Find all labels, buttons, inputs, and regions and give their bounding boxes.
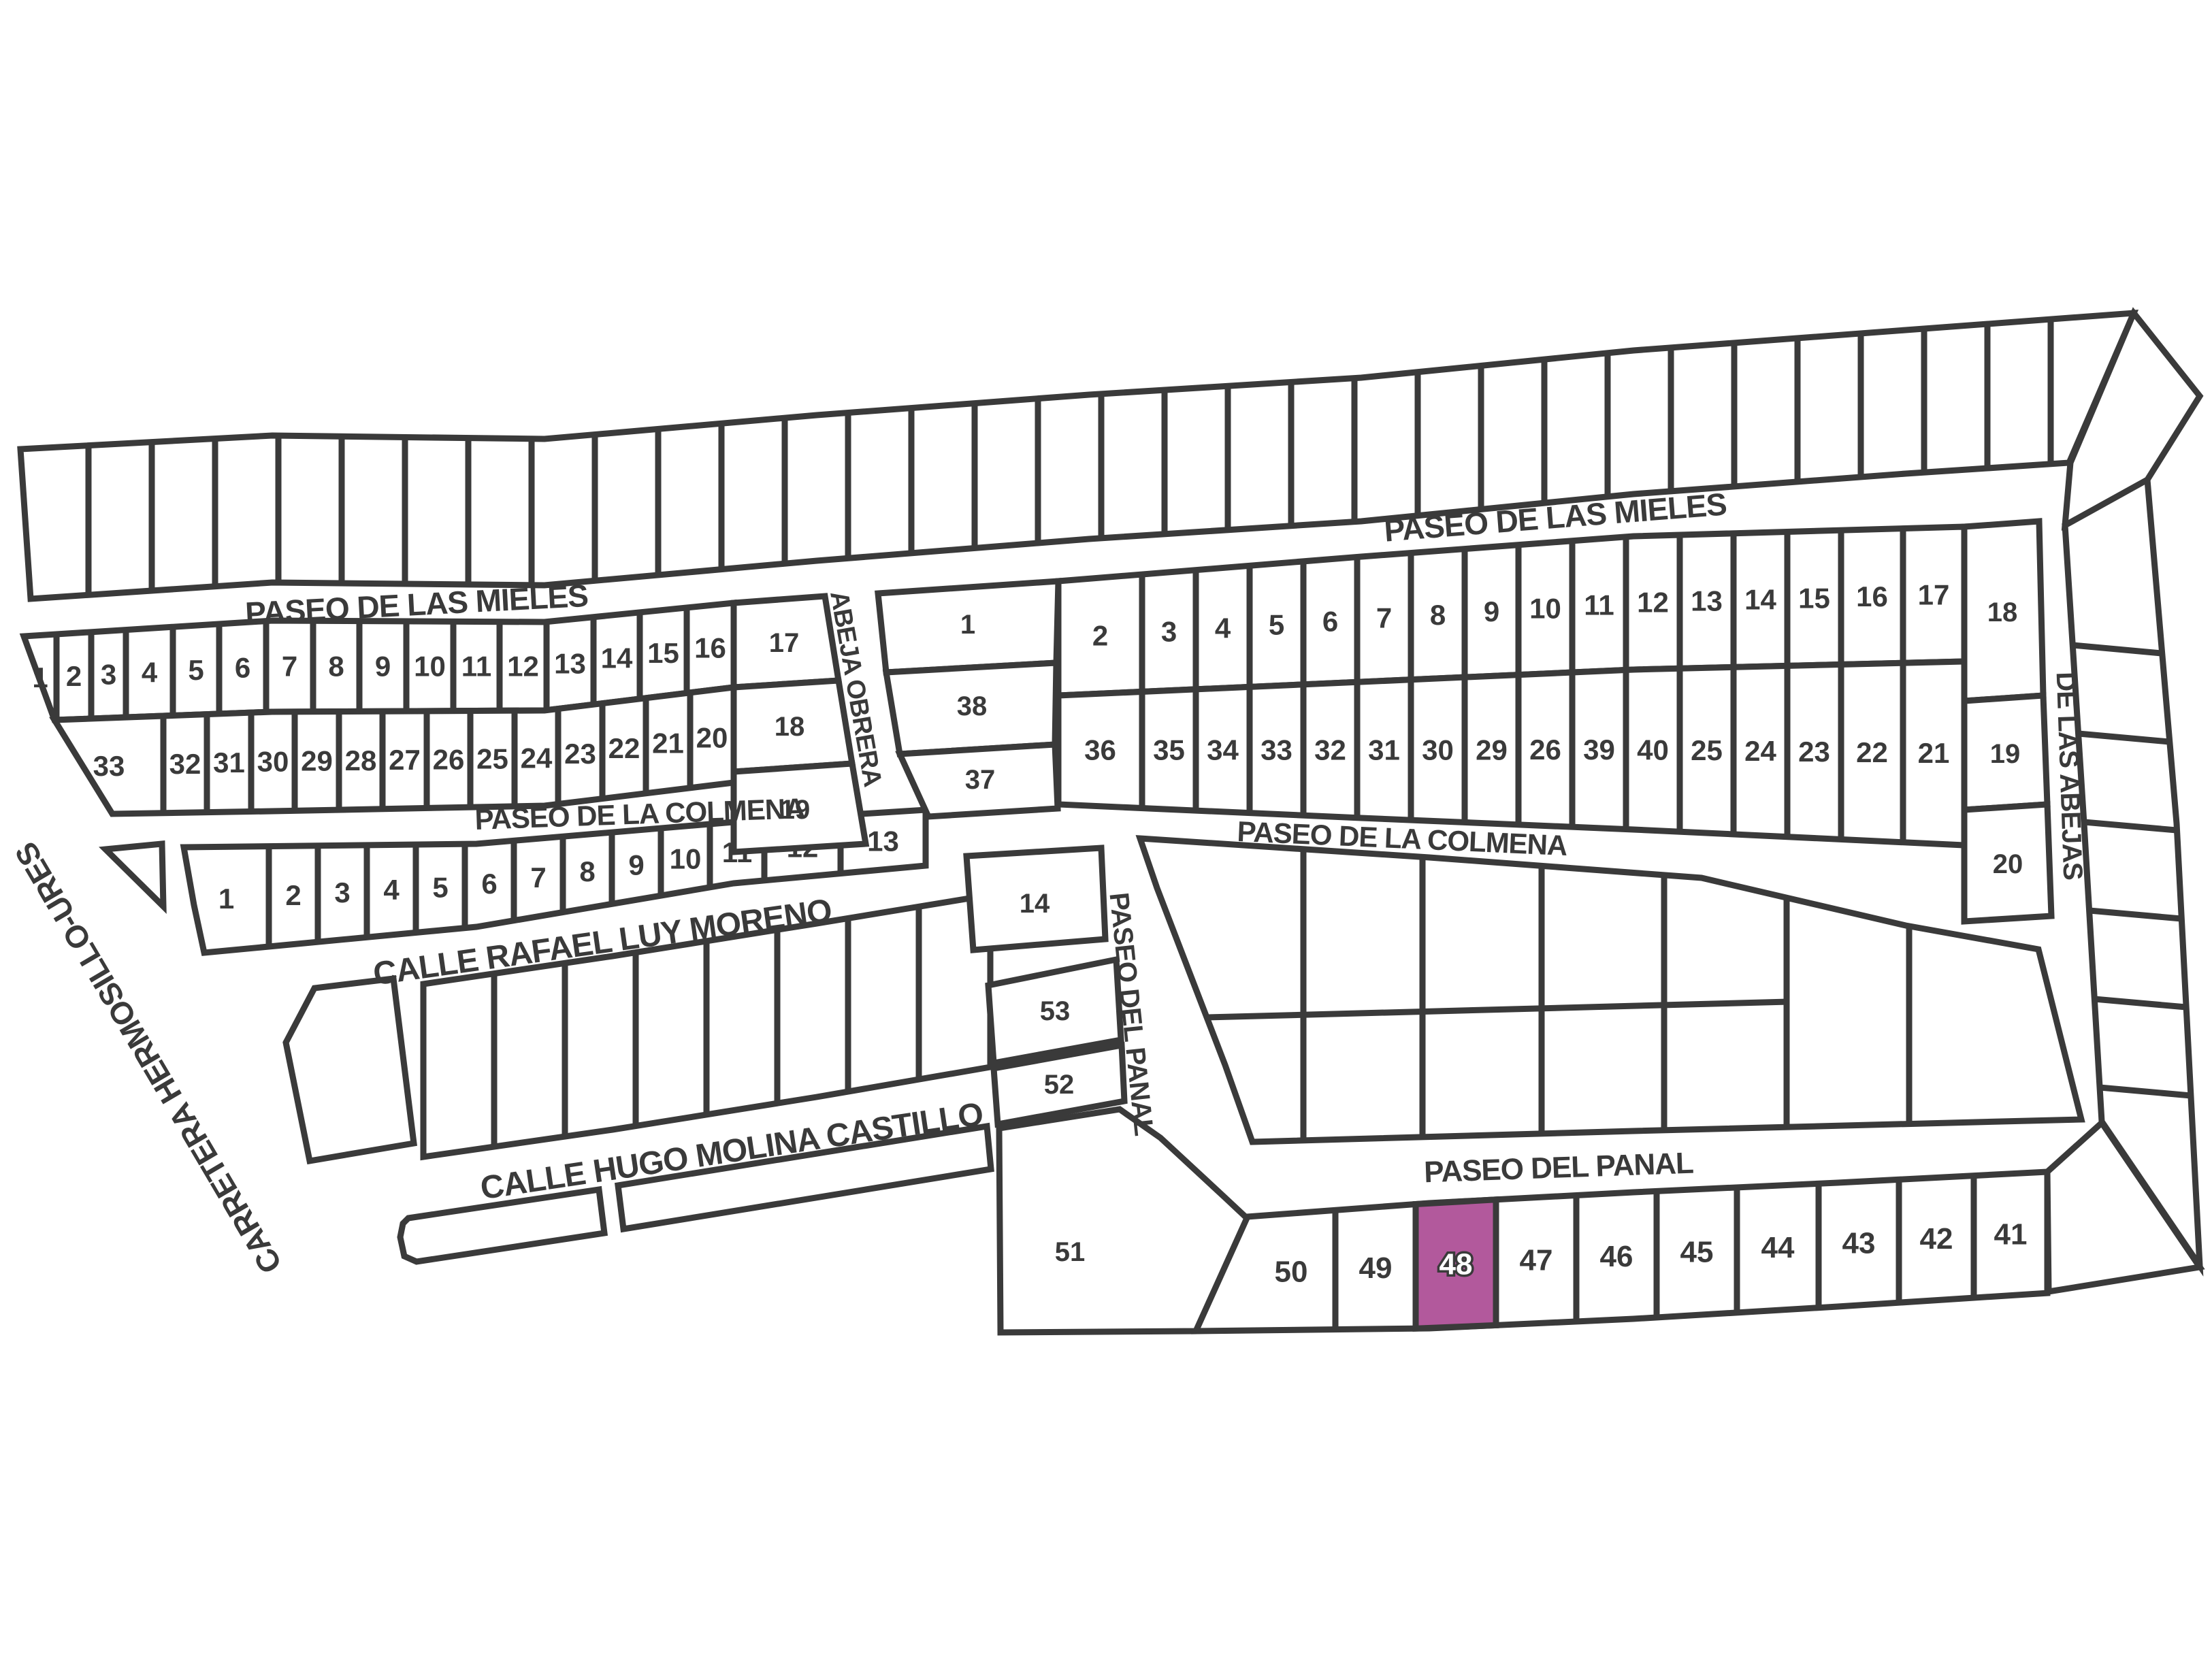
lot-panal-row-42[interactable]: 42 xyxy=(1920,1222,1953,1256)
block-lot-14: 14 xyxy=(966,848,1105,950)
lot-lot-14-14[interactable]: 14 xyxy=(1020,889,1050,919)
block-pentagon-lot xyxy=(286,979,414,1161)
block-panal-row: 50494847464544434241 xyxy=(1196,1172,2047,1331)
lot-colmena-south-8[interactable]: 8 xyxy=(579,855,595,887)
plat-map: 1234567891011121314151633323130292827262… xyxy=(0,0,2212,1655)
lot-right-row-a-11[interactable]: 11 xyxy=(1584,589,1614,621)
lot-panal-row-47[interactable]: 47 xyxy=(1520,1244,1553,1277)
lot-right-col-18-20-18[interactable]: 18 xyxy=(1987,597,2018,627)
lot-left-row-a-10[interactable]: 10 xyxy=(414,651,446,683)
lot-left-row-a-13[interactable]: 13 xyxy=(554,647,586,679)
lot-right-row-a-10[interactable]: 10 xyxy=(1529,592,1561,624)
lot-right-row-a-2[interactable]: 2 xyxy=(1092,620,1108,652)
lot-left-row-a-1[interactable]: 1 xyxy=(32,661,48,693)
lot-right-row-b-22[interactable]: 22 xyxy=(1856,736,1888,768)
lot-left-row-b-29[interactable]: 29 xyxy=(301,745,333,777)
lot-left-row-a-3[interactable]: 3 xyxy=(101,659,116,691)
lot-left-row-b-20[interactable]: 20 xyxy=(696,721,728,753)
lot-right-row-b-21[interactable]: 21 xyxy=(1918,737,1950,769)
lot-right-row-a-9[interactable]: 9 xyxy=(1484,595,1499,627)
lot-panal-row-48[interactable]: 48 xyxy=(1440,1248,1473,1281)
lot-colmena-south-3[interactable]: 3 xyxy=(334,876,350,908)
lot-left-row-a-12[interactable]: 12 xyxy=(507,651,539,683)
street-label-de-las-abejas: DE LAS ABEJAS xyxy=(2051,672,2088,881)
lot-panal-row-50[interactable]: 50 xyxy=(1275,1255,1308,1288)
lot-panal-row-44[interactable]: 44 xyxy=(1761,1231,1795,1264)
lot-right-row-b-31[interactable]: 31 xyxy=(1368,734,1400,766)
lot-right-row-b-34[interactable]: 34 xyxy=(1207,734,1239,766)
lot-left-row-b-31[interactable]: 31 xyxy=(213,747,245,779)
lot-right-row-a-14[interactable]: 14 xyxy=(1744,584,1776,616)
lot-colmena-south-5[interactable]: 5 xyxy=(432,871,448,903)
lot-left-row-b-25[interactable]: 25 xyxy=(476,742,508,774)
lot-right-row-b-29[interactable]: 29 xyxy=(1476,734,1508,766)
lot-right-row-a-12[interactable]: 12 xyxy=(1637,587,1669,619)
lot-left-row-a-5[interactable]: 5 xyxy=(188,654,204,686)
lot-right-row-a-5[interactable]: 5 xyxy=(1269,608,1284,640)
lot-left-row-a-8[interactable]: 8 xyxy=(328,651,344,683)
lot-left-row-a-16[interactable]: 16 xyxy=(694,632,726,663)
lot-panal-row-41[interactable]: 41 xyxy=(1994,1218,2028,1251)
lot-right-row-a-6[interactable]: 6 xyxy=(1322,605,1338,637)
lot-left-row-a-9[interactable]: 9 xyxy=(375,651,391,683)
lot-left-row-a-4[interactable]: 4 xyxy=(142,657,158,689)
block-right-row-b: 36353433323130292639402524232221 xyxy=(1058,661,1964,845)
lot-abeja-col-38[interactable]: 38 xyxy=(957,691,988,721)
lot-left-row-b-28[interactable]: 28 xyxy=(345,744,377,776)
interior-block-outline xyxy=(1140,838,2081,1142)
triangle-lot-outline xyxy=(105,844,163,906)
block-interior-block xyxy=(1140,838,2081,1142)
lot-left-row-b-27[interactable]: 27 xyxy=(389,744,421,776)
lot-left-row-b-33[interactable]: 33 xyxy=(93,750,125,782)
lot-right-row-a-16[interactable]: 16 xyxy=(1856,580,1888,612)
lot-left-row-b-22[interactable]: 22 xyxy=(608,732,640,764)
lot-lots-53-52-53[interactable]: 53 xyxy=(1040,996,1071,1026)
lot-right-row-b-33[interactable]: 33 xyxy=(1260,734,1292,766)
plat-map-svg: 1234567891011121314151633323130292827262… xyxy=(0,0,2212,1655)
lot-right-row-b-35[interactable]: 35 xyxy=(1153,734,1185,766)
lot-colmena-south-9[interactable]: 9 xyxy=(628,849,644,881)
lot-left-row-a-15[interactable]: 15 xyxy=(647,637,679,669)
lot-abeja-col-1[interactable]: 1 xyxy=(960,610,975,640)
lot-left-row-a-11[interactable]: 11 xyxy=(461,651,491,683)
lot-panal-row-45[interactable]: 45 xyxy=(1680,1236,1714,1269)
lot-colmena-south-4[interactable]: 4 xyxy=(383,874,400,906)
lot-left-row-b-21[interactable]: 21 xyxy=(652,727,684,759)
lot-right-row-b-23[interactable]: 23 xyxy=(1798,736,1830,768)
street-label-panal-horizontal: PASEO DEL PANAL xyxy=(1423,1147,1693,1190)
lot-colmena-south-1[interactable]: 1 xyxy=(218,883,234,915)
block-lots-53-52: 5352 xyxy=(988,960,1124,1124)
block-abeja-col: 13837 xyxy=(878,581,1058,817)
lot-right-row-b-40[interactable]: 40 xyxy=(1637,734,1669,766)
lot-panal-row-46[interactable]: 46 xyxy=(1600,1240,1633,1273)
lot-right-row-a-8[interactable]: 8 xyxy=(1430,599,1446,631)
lot-panal-row-43[interactable]: 43 xyxy=(1842,1227,1876,1260)
lot-right-row-b-25[interactable]: 25 xyxy=(1691,734,1723,766)
lot-right-col-18-20-19[interactable]: 19 xyxy=(1990,739,2021,769)
lot-right-row-a-3[interactable]: 3 xyxy=(1161,615,1177,647)
lot-right-row-b-36[interactable]: 36 xyxy=(1084,734,1116,766)
lot-right-row-b-30[interactable]: 30 xyxy=(1422,734,1454,766)
lot-right-row-a-4[interactable]: 4 xyxy=(1215,612,1231,644)
block-right-col-18-20: 181920 xyxy=(1964,521,2051,921)
lot-left-col-17-19-18[interactable]: 18 xyxy=(775,712,805,742)
lot-panal-row-49[interactable]: 49 xyxy=(1359,1251,1393,1285)
lot-right-row-a-15[interactable]: 15 xyxy=(1798,582,1830,614)
lot-right-row-a-13[interactable]: 13 xyxy=(1691,585,1723,617)
pentagon-lot-outline xyxy=(286,979,414,1161)
lot-left-row-a-2[interactable]: 2 xyxy=(66,660,82,692)
lot-colmena-south-2[interactable]: 2 xyxy=(285,879,301,911)
lot-left-col-17-19-17[interactable]: 17 xyxy=(769,628,800,658)
lot-lot-51-51[interactable]: 51 xyxy=(1055,1237,1086,1267)
lot-left-row-b-24[interactable]: 24 xyxy=(521,742,553,774)
block-lot-51: 51 xyxy=(999,1109,1247,1332)
lot-colmena-south-7[interactable]: 7 xyxy=(530,862,546,894)
block-triangle-lot xyxy=(105,844,163,906)
lot-shape-lot-51-51 xyxy=(999,1109,1247,1332)
lot-colmena-south-13[interactable]: 13 xyxy=(867,825,899,857)
lot-right-row-b-24[interactable]: 24 xyxy=(1744,735,1776,767)
lot-right-col-18-20-20[interactable]: 20 xyxy=(1993,849,2023,879)
lot-left-row-a-6[interactable]: 6 xyxy=(235,652,250,684)
lot-lots-53-52-52[interactable]: 52 xyxy=(1044,1070,1075,1100)
lot-right-row-b-32[interactable]: 32 xyxy=(1314,734,1346,766)
lot-left-row-b-30[interactable]: 30 xyxy=(257,745,289,777)
lot-left-row-b-32[interactable]: 32 xyxy=(169,748,201,780)
lot-right-row-b-39[interactable]: 39 xyxy=(1583,734,1615,766)
lot-left-row-a-14[interactable]: 14 xyxy=(601,642,633,674)
lot-left-row-b-26[interactable]: 26 xyxy=(433,743,465,775)
lot-colmena-south-6[interactable]: 6 xyxy=(481,868,497,900)
lot-left-row-a-7[interactable]: 7 xyxy=(282,651,297,683)
lot-abeja-col-37[interactable]: 37 xyxy=(965,765,996,795)
lot-right-row-a-17[interactable]: 17 xyxy=(1918,579,1950,611)
lot-colmena-south-10[interactable]: 10 xyxy=(670,843,702,875)
lot-right-row-b-26[interactable]: 26 xyxy=(1529,734,1561,766)
lot-right-row-a-7[interactable]: 7 xyxy=(1376,602,1392,634)
lot-left-row-b-23[interactable]: 23 xyxy=(564,738,596,770)
